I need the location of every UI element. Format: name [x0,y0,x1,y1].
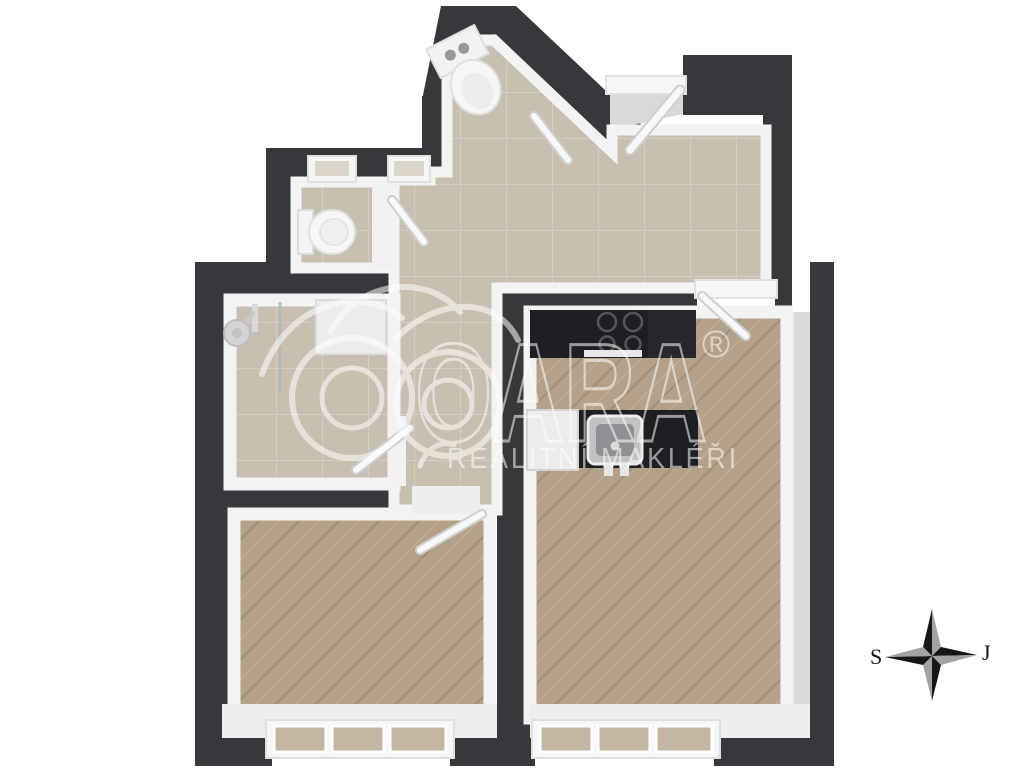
compass-label-east: J [982,640,991,665]
floor-plan-canvas: OARA ® REALITNÍ MAKLÉŘI S J [0,0,1024,768]
compass-label-west: S [870,644,882,669]
small-window [308,156,356,182]
compass-rose-icon: S J [870,609,991,701]
window [266,720,454,758]
registered-trademark-icon: ® [702,324,730,366]
small-window [388,156,430,182]
toilet [298,210,355,254]
window [532,720,720,758]
bedroom-floor [234,514,490,718]
floor-plan-image: OARA ® REALITNÍ MAKLÉŘI S J [0,0,1024,768]
watermark-subtitle: REALITNÍ MAKLÉŘI [447,442,739,475]
